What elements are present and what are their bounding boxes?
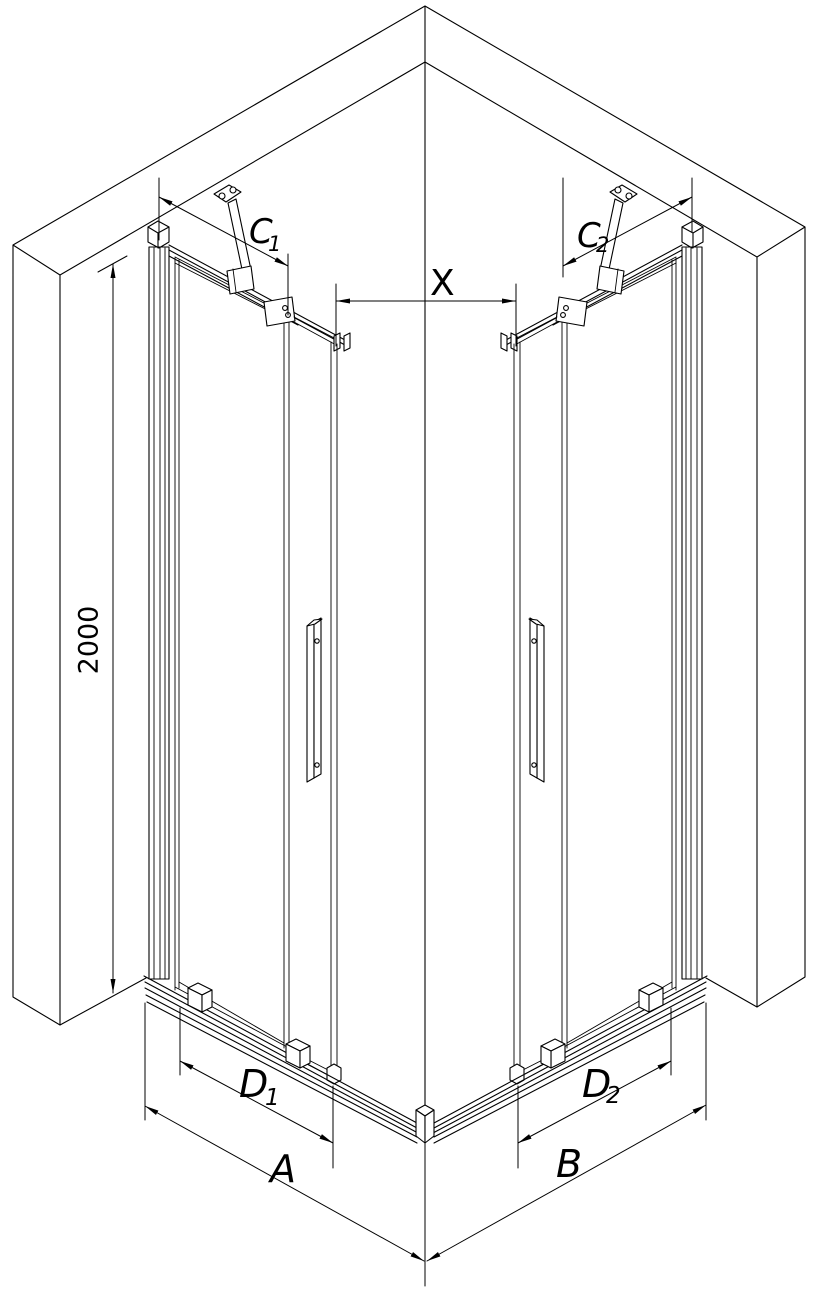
dim-label-d1: D [239, 1062, 268, 1106]
right-wall-profile [682, 221, 703, 979]
tray-corner-cap [416, 1105, 434, 1143]
left-wall-anchor [214, 185, 241, 202]
dim-label-d1-sub: 1 [265, 1085, 280, 1111]
right-roller-bracket [556, 297, 587, 326]
dimensions: 2000 C 1 C 2 X D 1 D [74, 178, 707, 1286]
dimension-d2: D 2 [518, 1008, 671, 1168]
left-assembly [148, 185, 350, 1084]
right-rail-clamp [597, 266, 624, 294]
dimension-height-2000: 2000 [74, 256, 128, 993]
dim-label-a: A [267, 1147, 296, 1191]
dimension-b: B [427, 1003, 706, 1261]
dim-label-c2-sub: 2 [596, 233, 609, 257]
dimension-a: A [145, 1003, 424, 1261]
dim-label-height: 2000 [74, 606, 105, 675]
left-top-rail [169, 245, 350, 351]
right-top-rail [501, 245, 682, 351]
left-rail-end-cap [344, 333, 350, 351]
dimension-d1: D 1 [180, 1008, 333, 1168]
right-rail-end-cap [501, 333, 507, 351]
dim-label-c1-sub: 1 [268, 232, 281, 256]
right-fixed-panel [562, 257, 676, 1051]
shower-enclosure-diagram: 2000 C 1 C 2 X D 1 D [0, 0, 821, 1289]
dim-label-x: X [430, 263, 455, 304]
left-door-handle [307, 618, 322, 782]
dim-label-d2-sub: 2 [606, 1083, 621, 1109]
left-fixed-panel [175, 257, 289, 1051]
right-door-handle [529, 618, 544, 782]
bottom-rail-right [433, 976, 707, 1143]
left-wall-profile [148, 221, 169, 979]
dim-label-b: B [556, 1142, 582, 1186]
dimension-x: X [336, 263, 516, 346]
right-assembly [501, 185, 703, 1084]
diagram-canvas: 2000 C 1 C 2 X D 1 D [0, 0, 821, 1289]
bottom-rail-left [144, 976, 418, 1143]
left-rail-clamp [227, 266, 254, 294]
right-wall-anchor [610, 185, 637, 202]
left-roller-bracket [264, 297, 295, 326]
